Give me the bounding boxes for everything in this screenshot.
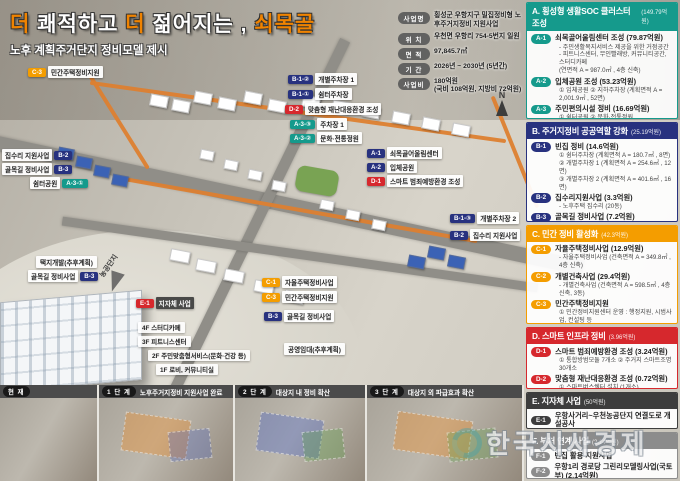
section-title: D. 스마트 인프라 정비 [532, 330, 606, 342]
map-label-text: 쇠목골어울림센터 [387, 147, 442, 159]
phase-panel-2: 2 단 계대상지 내 정비 확산 [235, 385, 367, 481]
item-head: C-1자율주택정비사업 (12.9억원) [531, 245, 673, 255]
floor-label: 4F 스터디카페 [138, 322, 185, 333]
info-value: 횡성군 우항지구 밀집정비형 노후주거지정비 지원사업 [434, 12, 524, 30]
item-head: B-3골목길 정비사업 (7.2억원) [531, 213, 673, 222]
map-label-badge: D-1 [367, 177, 385, 186]
map-label-A-3-③: A-3-③주차장 1 [290, 118, 347, 130]
item-title: 입체공원 조성 (53.23억원) [555, 78, 636, 87]
section-header: F. 부처 연계 사업(2.14억원) [527, 433, 677, 449]
phase-overlay [301, 427, 345, 461]
section-header: A. 횡성형 생활SOC 클러스터 조성(149.79억원) [527, 3, 677, 31]
item-subline: ① 통합방범모듈 7개소 ② 주거지 스마트조명 30개소 [559, 357, 673, 373]
item-title: 맞춤형 재난대응환경 조성 (0.72억원) [555, 375, 667, 384]
item-badge: A-3 [531, 105, 551, 115]
map-plain-label: 택지개발(추후계획) [36, 256, 97, 268]
phase-panel-0: 현 재 [0, 385, 99, 481]
section-item-F-1: F-1빈집 활용 지원사업 [531, 452, 673, 462]
item-title: 민간주택정비지원 [555, 300, 609, 309]
item-subline: ② 개별주차장 1 (계획면적 A = 254.6㎡ , 12면) [559, 160, 673, 176]
item-head: C-2개별건축사업 (29.4억원) [531, 272, 673, 282]
info-label: 기 간 [398, 63, 430, 75]
section-budget: (50억원) [584, 397, 606, 406]
section-title: C. 민간 정비 활성화 [532, 228, 598, 240]
phase-overlay [167, 427, 212, 461]
info-value-subtext: (국비 108억원, 지방비 72억원) [434, 86, 521, 95]
info-value: 97,845.7㎡ [434, 48, 467, 57]
info-label: 사업비 [398, 78, 430, 90]
map-label-B-2: B-2집수리 지원사업 [450, 229, 520, 241]
section-budget: (2.14억원) [592, 437, 619, 446]
section-item-F-2: F-2우항1리 경로당 그린리모델링사업(국토부) (2.14억원) [531, 463, 673, 479]
map-label-text: 개별주차장 1 [315, 73, 357, 85]
section-body: D-1스마트 범죄예방환경 조성 (3.24억원)① 통합방범모듈 7개소 ② … [527, 344, 677, 388]
section-item-B-3: B-3골목길 정비사업 (7.2억원)- 거주구역별 특색있는 경관 조성 (3… [531, 213, 673, 222]
map-label-text: 집수리 지원사업 [2, 149, 52, 161]
item-head: F-1빈집 활용 지원사업 [531, 452, 673, 462]
info-row: 면 적97,845.7㎡ [398, 48, 524, 60]
info-row: 사업명횡성군 우항지구 밀집정비형 노후주거지정비 지원사업 [398, 12, 524, 30]
item-subline: ① 스마트버스쉘터 설치 (1개소) [559, 384, 673, 388]
community-center-render [0, 290, 142, 392]
map-label-badge: A-3-① [62, 179, 87, 188]
section-body: F-1빈집 활용 지원사업F-2우항1리 경로당 그린리모델링사업(국토부) (… [527, 449, 677, 479]
phase-desc: 대상지 내 정비 확산 [276, 387, 330, 397]
map-label-B-3: 골목길 정비사업B-3 [2, 163, 72, 175]
info-label: 위 치 [398, 33, 430, 45]
phase-header: 현 재 [0, 385, 97, 398]
phase-timeline: 현 재1 단 계노후주거지정비 지원사업 완료2 단 계대상지 내 정비 확산3… [0, 385, 524, 481]
info-value: 우천면 우항리 754-5번지 일원 [434, 33, 520, 42]
map-label-text: 골목길 정비사업 [28, 270, 78, 282]
item-head: D-1스마트 범죄예방환경 조성 (3.24억원) [531, 347, 673, 357]
item-head: C-3민간주택정비지원 [531, 300, 673, 310]
item-head: A-3주민편의시설 정비 (16.69억원) [531, 105, 673, 115]
floor-label: 3F 피트니스센터 [138, 336, 191, 347]
map-label-badge: B-2 [54, 151, 72, 160]
phase-header: 1 단 계노후주거지정비 지원사업 완료 [99, 385, 233, 398]
item-badge: C-2 [531, 272, 551, 282]
phase-badge: 2 단 계 [238, 386, 272, 397]
item-badge: B-2 [531, 193, 551, 203]
item-badge: D-1 [531, 347, 551, 357]
building [247, 169, 263, 181]
map-label-text: 골목길 정비사업 [284, 310, 334, 322]
item-subline: ① 민간정비지원센터 운영 : 행정지원, 시범사업, 컨설팅 등 [559, 309, 673, 324]
phase-header: 3 단 계대상지 외 파급효과 확산 [367, 385, 522, 398]
phase-thumbnail [367, 398, 522, 481]
map-label-text: 골목길 정비사업 [2, 163, 52, 175]
floor-label: 1F 로비, 커뮤니티실 [156, 364, 218, 375]
map-label-badge: C-3 [28, 68, 46, 77]
map-label-badge: D-2 [285, 105, 303, 114]
phase-thumbnail [235, 398, 365, 481]
section-body: B-1빈집 정비 (14.6억원)① 쉼터주차장 (계획면적 A = 180.7… [527, 139, 677, 222]
section-header: D. 스마트 인프라 정비(3.96억원) [527, 328, 677, 344]
info-value-text: 97,845.7㎡ [434, 48, 467, 57]
section-title: F. 부처 연계 사업 [532, 435, 589, 447]
item-head: D-2맞춤형 재난대응환경 조성 (0.72억원) [531, 375, 673, 385]
section-item-D-1: D-1스마트 범죄예방환경 조성 (3.24억원)① 통합방범모듈 7개소 ② … [531, 347, 673, 372]
section-item-E-1: E-1우항사거리~우천농공단지 연결도로 개설공사 [531, 412, 673, 429]
item-badge: B-1 [531, 142, 551, 152]
map-label-badge: B-1-① [288, 90, 313, 99]
item-title: 스마트 범죄예방환경 조성 (3.24억원) [555, 348, 667, 357]
item-head: B-2집수리지원사업 (3.3억원) [531, 193, 673, 203]
item-head: F-2우항1리 경로당 그린리모델링사업(국토부) (2.14억원) [531, 463, 673, 479]
sidebar-section-E: E. 지자체 사업(50억원)E-1우항사거리~우천농공단지 연결도로 개설공사 [526, 392, 678, 429]
section-item-C-1: C-1자율주택정비사업 (12.9억원)- 자율주택정비사업 (건축면적 A =… [531, 245, 673, 270]
item-head: E-1우항사거리~우천농공단지 연결도로 개설공사 [531, 412, 673, 429]
map-label-badge: B-1-③ [450, 214, 475, 223]
map-label-text: 문화·전통정원 [317, 132, 362, 144]
phase-header: 2 단 계대상지 내 정비 확산 [235, 385, 365, 398]
section-budget: (149.79억원) [641, 7, 672, 25]
phase-desc: 대상지 외 파급효과 확산 [408, 387, 474, 397]
section-body: A-1쇠목골어울림센터 조성 (79.87억원)- 주민생활복지서비스 제공을 … [527, 31, 677, 119]
sidebar-section-B: B. 주거지정비 공공역할 강화(25.19억원)B-1빈집 정비 (14.6억… [526, 122, 678, 222]
map-label-text: 입체공원 [387, 161, 417, 173]
section-item-B-2: B-2집수리지원사업 (3.3억원)- 노후주택 집수리 (20동) [531, 193, 673, 210]
building-floor-callout: 4F 스터디카페3F 피트니스센터2F 주민맞춤형서비스(문화·건강 등)1F … [138, 322, 250, 375]
section-item-A-1: A-1쇠목골어울림센터 조성 (79.87억원)- 주민생활복지서비스 제공을 … [531, 34, 673, 75]
map-label-text: 집수리 지원사업 [470, 229, 520, 241]
map-label-text: 쉼터공원 [30, 177, 60, 189]
map-label-text: 민간주택정비지원 [282, 291, 337, 303]
item-head: A-2입체공원 조성 (53.23억원) [531, 77, 673, 87]
phase-thumbnail [0, 398, 97, 481]
map-label-C-3: C-3민간주택정비지원 [262, 291, 337, 303]
map-label-C-3: C-3민간주택정비지원 [28, 66, 103, 78]
info-row: 기 간2026년 ~ 2030년 (5년간) [398, 63, 524, 75]
map-label-B-2: 집수리 지원사업B-2 [2, 149, 72, 161]
sidebar-section-F: F. 부처 연계 사업(2.14억원)F-1빈집 활용 지원사업F-2우항1리 … [526, 432, 678, 479]
item-badge: A-1 [531, 34, 551, 44]
map-label-text: 맞춤형 재난대응환경 조성 [305, 103, 381, 115]
section-item-D-2: D-2맞춤형 재난대응환경 조성 (0.72억원)① 스마트버스쉘터 설치 (1… [531, 375, 673, 389]
phase-thumbnail [99, 398, 233, 481]
item-badge: F-2 [531, 467, 550, 477]
item-title: 주민편의시설 정비 (16.69억원) [555, 105, 649, 114]
item-badge: F-1 [531, 452, 550, 462]
item-title: 집수리지원사업 (3.3억원) [555, 194, 632, 203]
item-subline: - 피트니스센터, 무인빨래방, 커뮤니티공간, 스터디카페 [559, 51, 673, 67]
map-label-B-1-①: B-1-①쉼터주차장 [288, 88, 352, 100]
map-label-badge: B-3 [264, 312, 282, 321]
map-label-text: 쉼터주차장 [315, 88, 351, 100]
building [447, 254, 466, 269]
map-label-text: 개별주차장 2 [477, 212, 519, 224]
map-label-A-1: A-1쇠목골어울림센터 [367, 147, 442, 159]
item-head: B-1빈집 정비 (14.6억원) [531, 142, 673, 152]
map-label-text: 지자체 사업 [156, 297, 194, 309]
item-badge: D-2 [531, 375, 551, 385]
building [111, 174, 129, 188]
section-item-A-3: A-3주민편의시설 정비 (16.69억원)① 쉼터공원 ② 문화·전통정원③ … [531, 105, 673, 120]
map-plain-label: 공영임대(추후계획) [284, 343, 345, 355]
map-label-E-1: E-1지자체 사업 [136, 297, 194, 309]
section-item-C-3: C-3민간주택정비지원① 민간정비지원센터 운영 : 행정지원, 시범사업, 컨… [531, 300, 673, 325]
section-item-A-2: A-2입체공원 조성 (53.23억원)① 입체공원 ② 지하주차장 (계획면적… [531, 77, 673, 102]
map-label-A-2: A-2입체공원 [367, 161, 417, 173]
building [427, 245, 446, 260]
info-value: 2026년 ~ 2030년 (5년간) [434, 63, 507, 72]
map-label-badge: A-2 [367, 163, 385, 172]
item-title: 골목길 정비사업 (7.2억원) [555, 213, 634, 222]
section-item-C-2: C-2개별건축사업 (29.4억원)- 개별건축사업 (건축면적 A = 598… [531, 272, 673, 297]
section-title: E. 지자체 사업 [532, 395, 581, 407]
info-row: 사업비180억원(국비 108억원, 지방비 72억원) [398, 78, 524, 96]
sidebar-section-C: C. 민간 정비 활성화(42.3억원)C-1자율주택정비사업 (12.9억원)… [526, 225, 678, 325]
info-label: 면 적 [398, 48, 430, 60]
building [199, 149, 215, 161]
section-header: C. 민간 정비 활성화(42.3억원) [527, 226, 677, 242]
item-subline: ③ 개별주차장 2 (계획면적 A = 401.6㎡ , 16면) [559, 176, 673, 192]
phase-panel-1: 1 단 계노후주거지정비 지원사업 완료 [99, 385, 235, 481]
section-body: E-1우항사거리~우천농공단지 연결도로 개설공사 [527, 409, 677, 429]
map-label-badge: C-1 [262, 278, 280, 287]
building [93, 165, 111, 179]
phase-badge: 1 단 계 [102, 386, 136, 397]
phase-panel-3: 3 단 계대상지 외 파급효과 확산 [367, 385, 524, 481]
sidebar-section-D: D. 스마트 인프라 정비(3.96억원)D-1스마트 범죄예방환경 조성 (3… [526, 327, 678, 388]
section-title: A. 횡성형 생활SOC 클러스터 조성 [532, 5, 638, 29]
map-label-badge: B-3 [54, 165, 72, 174]
item-title: 빈집 활용 지원사업 [554, 452, 612, 461]
map-label-A-3-②: A-3-②문화·전통정원 [290, 132, 362, 144]
map-label-text: 주차장 1 [317, 118, 347, 130]
item-subline: - 자율주택정비사업 (건축면적 A = 349.8㎡ , 4층 신축) [559, 254, 673, 270]
section-body: C-1자율주택정비사업 (12.9억원)- 자율주택정비사업 (건축면적 A =… [527, 242, 677, 325]
map-label-badge: A-1 [367, 149, 385, 158]
section-budget: (25.19억원) [631, 127, 661, 136]
item-title: 우항사거리~우천농공단지 연결도로 개설공사 [555, 412, 673, 429]
map-label-text: 스마트 범죄예방환경 조성 [387, 175, 463, 187]
item-badge: B-3 [531, 213, 551, 222]
info-value-text: 2026년 ~ 2030년 (5년간) [434, 63, 507, 72]
sidebar-section-A: A. 횡성형 생활SOC 클러스터 조성(149.79억원)A-1쇠목골어울림센… [526, 2, 678, 119]
info-value-text: 횡성군 우항지구 밀집정비형 노후주거지정비 지원사업 [434, 12, 524, 30]
info-row: 위 치우천면 우항리 754-5번지 일원 [398, 33, 524, 45]
info-label: 사업명 [398, 12, 430, 24]
item-badge: C-1 [531, 245, 551, 255]
map-label-D-2: D-2맞춤형 재난대응환경 조성 [285, 103, 381, 115]
map-label-badge: E-1 [136, 299, 154, 308]
item-badge: A-2 [531, 77, 551, 87]
page-subtitle: 노후 계획주거단지 정비모델 제시 [10, 42, 315, 58]
item-title: 우항1리 경로당 그린리모델링사업(국토부) (2.14억원) [554, 463, 673, 479]
phase-badge: 3 단 계 [370, 386, 404, 397]
item-title: 쇠목골어울림센터 조성 (79.87억원) [555, 34, 663, 43]
item-subline: ① 쉼터주차장 (계획면적 A = 180.7㎡ , 8면) [559, 152, 673, 160]
map-label-text: 민간주택정비지원 [48, 66, 103, 78]
item-subline: ① 쉼터공원 ② 문화·전통정원 [559, 114, 673, 119]
map-label-badge: B-1-② [288, 75, 313, 84]
map-label-badge: B-2 [450, 231, 468, 240]
section-item-B-1: B-1빈집 정비 (14.6억원)① 쉼터주차장 (계획면적 A = 180.7… [531, 142, 673, 191]
item-title: 자율주택정비사업 (12.9억원) [555, 245, 643, 254]
section-budget: (3.96억원) [609, 332, 636, 341]
phase-badge: 현 재 [3, 386, 30, 397]
map-label-badge: A-3-② [290, 134, 315, 143]
map-label-A-3-①: 쉼터공원A-3-① [30, 177, 88, 189]
section-header: E. 지자체 사업(50억원) [527, 393, 677, 409]
info-value-text: 우천면 우항리 754-5번지 일원 [434, 33, 520, 42]
item-subline: ① 입체공원 ② 지하주차장 (계획면적 A = 2,001.9㎡ , 52면) [559, 87, 673, 103]
item-badge: E-1 [531, 416, 551, 426]
item-title: 개별건축사업 (29.4억원) [555, 273, 630, 282]
map-label-D-1: D-1스마트 범죄예방환경 조성 [367, 175, 463, 187]
phase-desc: 노후주거지정비 지원사업 완료 [140, 387, 223, 397]
project-sidebar: A. 횡성형 생활SOC 클러스터 조성(149.79억원)A-1쇠목골어울림센… [524, 0, 680, 481]
title-block: 더 쾌적하고 더 젊어지는 , 쇠목골 노후 계획주거단지 정비모델 제시 [10, 8, 315, 58]
section-budget: (42.3억원) [601, 230, 628, 239]
map-label-badge: C-3 [262, 293, 280, 302]
map-label-badge: A-3-③ [290, 120, 315, 129]
map-label-B-3: 골목길 정비사업B-3 [28, 270, 98, 282]
phase-overlay [446, 427, 497, 462]
map-label-B-1-②: B-1-②개별주차장 1 [288, 73, 357, 85]
item-subline: - 개별건축사업 (건축면적 A = 598.5㎡ , 4층 신축, 3동) [559, 282, 673, 298]
floor-label: 2F 주민맞춤형서비스(문화·건강 등) [148, 350, 250, 361]
item-head: A-1쇠목골어울림센터 조성 (79.87억원) [531, 34, 673, 44]
item-badge: C-3 [531, 300, 551, 310]
info-value: 180억원(국비 108억원, 지방비 72억원) [434, 78, 521, 96]
map-label-B-1-③: B-1-③개별주차장 2 [450, 212, 519, 224]
map-label-B-3: B-3골목길 정비사업 [264, 310, 334, 322]
poster-root: N 더 쾌적하고 더 젊어지는 , 쇠목골 노후 계획주거단지 정비모델 제시 … [0, 0, 680, 481]
item-subline: (연면적 A = 987.0㎡ , 4층 신축) [559, 67, 673, 75]
section-header: B. 주거지정비 공공역할 강화(25.19억원) [527, 123, 677, 139]
map-label-text: 자율주택정비사업 [282, 276, 337, 288]
item-subline: - 노후주택 집수리 (20동) [559, 203, 673, 211]
item-title: 빈집 정비 (14.6억원) [555, 143, 618, 152]
section-title: B. 주거지정비 공공역할 강화 [532, 125, 628, 137]
page-title: 더 쾌적하고 더 젊어지는 , 쇠목골 [10, 8, 315, 38]
building [223, 159, 239, 171]
park-area [294, 165, 340, 198]
project-info-table: 사업명횡성군 우항지구 밀집정비형 노후주거지정비 지원사업위 치우천면 우항리… [398, 12, 524, 95]
map-label-C-1: C-1자율주택정비사업 [262, 276, 337, 288]
